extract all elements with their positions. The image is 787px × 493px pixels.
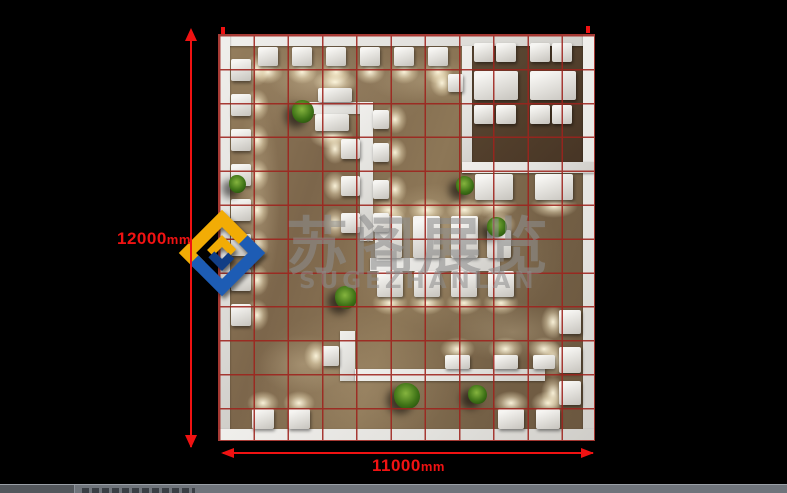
taskbar-clipped-text [82,488,195,493]
watermark-latin-text: SUGEZHANLAN [299,268,538,294]
arrow-up-icon [185,28,197,41]
plan-corner-tick-right [586,26,590,33]
arrow-left-icon [221,448,234,458]
arrow-right-icon [581,448,594,458]
plan-corner-tick-left [221,27,225,34]
screenshot-canvas: { "colors": { "bg": "#000000", "dim-red"… [0,0,787,492]
arrow-down-icon [185,435,197,448]
horizontal-dimension-line [223,452,593,454]
vertical-dimension-label: 12000mm [117,229,191,249]
horizontal-dimension-label: 11000mm [372,456,445,476]
